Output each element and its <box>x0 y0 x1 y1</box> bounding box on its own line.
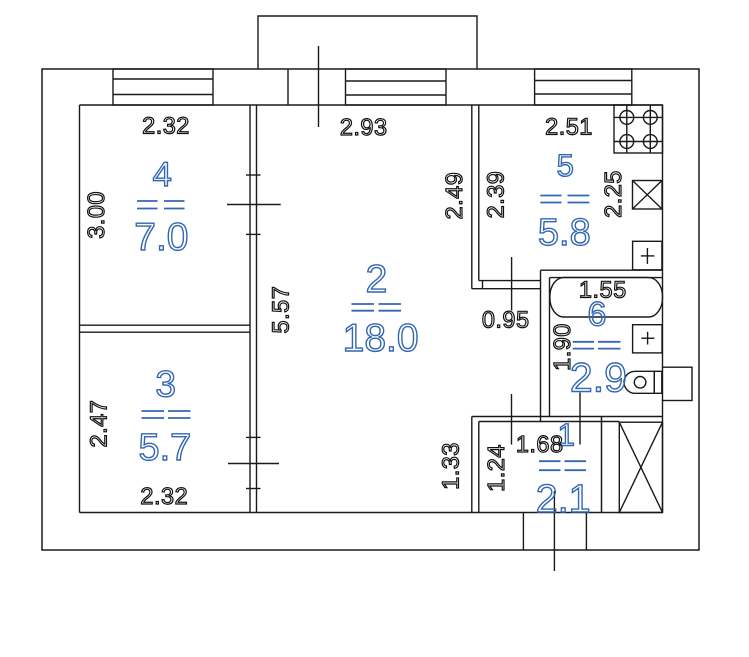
svg-text:2.51: 2.51 <box>545 114 593 140</box>
svg-text:3.00: 3.00 <box>83 191 109 239</box>
svg-text:5: 5 <box>557 148 574 183</box>
svg-text:2.47: 2.47 <box>86 400 112 448</box>
svg-text:2: 2 <box>366 258 388 301</box>
svg-text:5.8: 5.8 <box>538 212 591 254</box>
svg-text:2.9: 2.9 <box>570 355 627 401</box>
svg-text:1.33: 1.33 <box>438 442 464 490</box>
svg-text:4: 4 <box>153 156 172 194</box>
svg-text:2.49: 2.49 <box>441 172 467 220</box>
svg-text:1.55: 1.55 <box>579 277 627 303</box>
svg-text:5.7: 5.7 <box>138 427 191 469</box>
svg-text:0.95: 0.95 <box>482 306 530 332</box>
svg-text:3: 3 <box>155 364 176 405</box>
svg-text:1.24: 1.24 <box>483 444 509 492</box>
svg-text:7.0: 7.0 <box>134 216 188 259</box>
svg-text:2.93: 2.93 <box>340 114 388 140</box>
svg-text:2.39: 2.39 <box>482 171 508 219</box>
svg-text:2.25: 2.25 <box>600 170 626 218</box>
svg-text:2.32: 2.32 <box>140 483 188 509</box>
svg-text:2.1: 2.1 <box>536 477 591 521</box>
svg-text:2.32: 2.32 <box>142 113 190 139</box>
svg-text:1.90: 1.90 <box>549 323 575 371</box>
svg-text:5.57: 5.57 <box>267 286 293 334</box>
svg-text:1.68: 1.68 <box>516 431 564 457</box>
svg-text:18.0: 18.0 <box>343 317 419 360</box>
